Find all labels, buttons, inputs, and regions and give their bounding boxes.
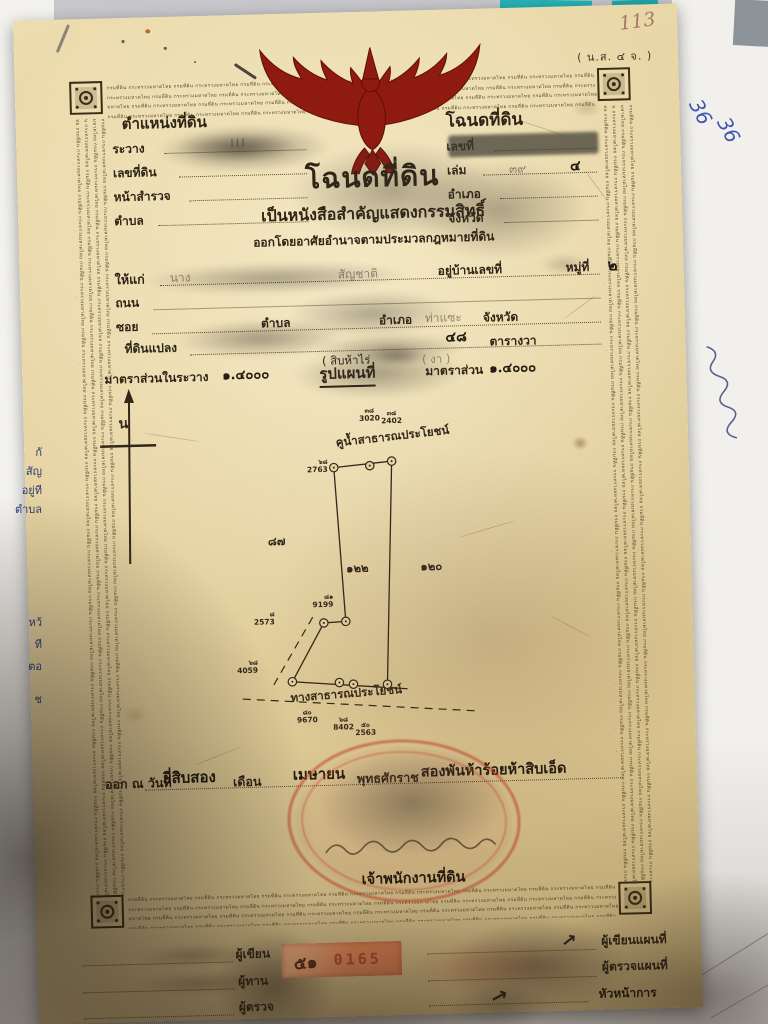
- margin-note-fragment: กั: [35, 443, 42, 461]
- survey-plot-map: น ๓๘3020๓๘2402๖๘2763๘๑9199๘2573๖๘4059๘๐9…: [85, 376, 515, 769]
- corner-rosette: [90, 894, 125, 929]
- serial-box: ๕๑ 0165: [281, 941, 402, 978]
- survey-point-label: ๘๐9670: [297, 708, 318, 725]
- area-unit: ตารางวา: [489, 331, 537, 351]
- border-right-microtext: กรมที่ดิน กระทรวงมหาดไทย กรมที่ดิน กระทร…: [599, 105, 653, 884]
- survey-point-label: ๘2573: [254, 610, 275, 627]
- boundary-line: [291, 623, 326, 682]
- deed-paper: 113 ( น.ส. ๔ จ. ) กรมที่ดิน กระทรวงมหาดไ…: [13, 3, 703, 1024]
- corner-rosette: [618, 880, 653, 915]
- margin-handwriting: กัสัญอยู่ทีตำบลหว้ทีตอช: [0, 0, 54, 1024]
- stain: [572, 436, 588, 450]
- handwriting-squiggle: [688, 337, 760, 463]
- boundary-line: [334, 461, 392, 468]
- volume-value: ๔: [570, 155, 581, 177]
- margin-note-fragment: ช: [35, 690, 42, 708]
- survey-point-label: ๓๘2402: [381, 409, 402, 426]
- survey-point-label: ๓๘3020: [359, 406, 380, 423]
- parcel-number: ๑๒๒: [346, 561, 369, 576]
- survey-point-label: ๖๘4059: [237, 659, 258, 676]
- north-label: น: [118, 416, 128, 432]
- boundary-line: [382, 461, 398, 684]
- redaction-bar: [448, 132, 599, 158]
- serial-number: 0165: [333, 950, 382, 969]
- paper-crease: [693, 900, 768, 980]
- land-number-label: เลขที่ดิน: [113, 163, 157, 183]
- serial-book-number: ๕๑: [292, 948, 318, 977]
- handwritten-note-blue: 36: [712, 113, 745, 147]
- boundary-line: [334, 467, 346, 621]
- map-scale-value: ๑.๔๐๐๐: [489, 356, 536, 378]
- province-label: จังหวัด: [483, 308, 519, 328]
- form-code: ( น.ส. ๔ จ. ): [577, 46, 653, 66]
- soi-label: ซอย: [116, 318, 139, 338]
- margin-note-fragment: ตำบล: [15, 500, 42, 518]
- plot-label: ที่ดินแปลง: [124, 339, 177, 359]
- issue-day: ยี่สิบสอง: [163, 765, 217, 790]
- margin-note-fragment: สัญ: [26, 462, 42, 480]
- canal-label: คูน้ำสาธารณประโยชน์: [335, 421, 450, 451]
- margin-note-fragment: อยู่ที: [22, 481, 42, 499]
- survey-page-label: หน้าสำรวจ: [113, 187, 171, 207]
- moo-value: ๒: [607, 253, 618, 277]
- page-number-handwritten: 113: [618, 8, 657, 35]
- margin-note-fragment: ตอ: [28, 657, 42, 675]
- tambon-label-box: ตำบล: [114, 212, 144, 232]
- survey-point-label: ๖๘2763: [307, 458, 328, 475]
- survey-point-label: ๘๑9199: [312, 593, 333, 610]
- margin-note-fragment: หว้: [29, 613, 42, 631]
- pencil-mark: [56, 24, 70, 53]
- house-no-label: อยู่บ้านเลขที่: [437, 260, 502, 281]
- corner-rosette: [596, 67, 631, 102]
- ravang-label: ระวาง: [112, 139, 145, 159]
- parcel-number: ๑๒๐: [420, 559, 442, 574]
- margin-note-fragment: ที: [35, 635, 42, 653]
- road-label: ถนน: [115, 294, 139, 314]
- photo-scene: { "surface": { "note_page_number": "113"…: [0, 0, 768, 1024]
- parcel-number: ๘๗: [268, 534, 286, 548]
- corner-rosette: [69, 81, 104, 116]
- officer-title: เจ้าพนักงานที่ดิน: [323, 864, 504, 892]
- north-arrow: [99, 388, 160, 564]
- gray-object-corner: [733, 0, 768, 47]
- month-label: เดือน: [233, 772, 262, 793]
